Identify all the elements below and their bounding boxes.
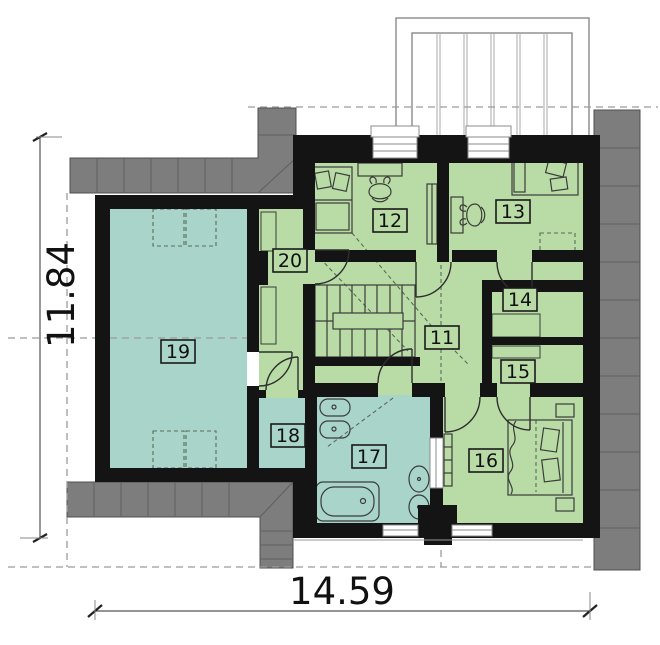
bedroom-16-window [452,525,492,536]
room-16-label: 16 [469,449,503,472]
room-17-label: 17 [352,445,386,468]
room-11-label: 11 [425,326,459,349]
balcony-door-right [468,137,509,158]
svg-text:19: 19 [166,341,190,363]
chimney-base [424,538,452,545]
svg-text:20: 20 [278,250,302,272]
room-12-label: 12 [373,209,407,232]
stair-rail [333,313,403,329]
room-19-floor [110,209,247,468]
chimney [418,505,457,538]
room-14-label: 14 [503,288,537,311]
bathroom-window [383,525,418,536]
room-18-label: 18 [271,424,305,447]
floor-plan-page: 11 12 13 14 15 16 17 18 19 20 11.84 14.5… [0,0,660,645]
svg-text:15: 15 [506,361,530,383]
svg-text:12: 12 [378,210,402,232]
balcony-door-left [373,137,417,158]
balcony [396,18,589,137]
floor-plan: 11 12 13 14 15 16 17 18 19 20 11.84 14.5… [0,0,660,645]
room-15-label: 15 [501,360,535,383]
bathroom-pocket-door [430,438,443,488]
roof-band-top-left [70,108,296,193]
room-13-label: 13 [496,200,530,223]
svg-text:13: 13 [501,201,525,223]
svg-text:18: 18 [276,425,300,447]
roof-band-right [594,110,640,570]
dimension-width: 14.59 [88,570,597,620]
svg-text:11: 11 [430,327,454,349]
svg-text:16: 16 [474,450,498,472]
balcony-door-sill-left [371,126,419,137]
dimension-height: 11.84 [20,133,83,542]
roof-band-bottom-left [67,482,293,568]
room-19-label: 19 [161,340,195,363]
width-dimension-label: 14.59 [289,570,395,613]
balcony-door-sill-right [466,126,511,137]
room-20-label: 20 [273,249,307,272]
svg-text:14: 14 [508,289,532,311]
height-dimension-label: 11.84 [40,242,83,348]
svg-text:17: 17 [357,446,381,468]
